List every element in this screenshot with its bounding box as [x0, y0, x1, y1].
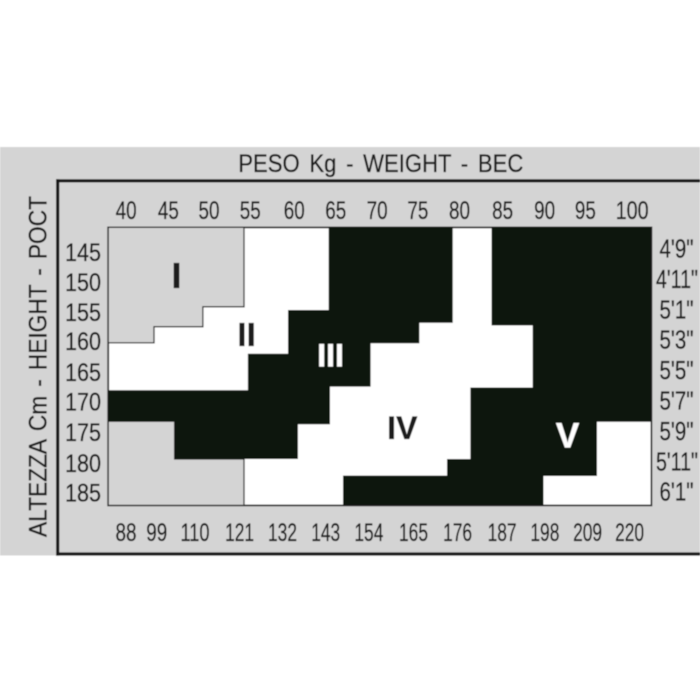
svg-text:5'9": 5'9": [660, 416, 694, 446]
svg-text:IV: IV: [387, 410, 418, 446]
svg-text:PESO Kg - WEIGHT - BEC: PESO Kg - WEIGHT - BEC: [238, 150, 523, 178]
svg-text:4'9": 4'9": [660, 234, 694, 264]
svg-text:150: 150: [65, 269, 101, 297]
svg-text:198: 198: [530, 519, 559, 547]
svg-text:154: 154: [354, 519, 383, 547]
svg-text:6'1": 6'1": [660, 477, 694, 507]
svg-text:220: 220: [615, 519, 644, 547]
svg-text:5'3": 5'3": [660, 325, 694, 355]
svg-text:75: 75: [407, 197, 428, 225]
svg-text:155: 155: [65, 299, 101, 327]
svg-text:209: 209: [573, 519, 602, 547]
svg-text:175: 175: [65, 419, 101, 447]
svg-text:5'1": 5'1": [660, 294, 694, 324]
svg-text:5'11": 5'11": [656, 446, 698, 476]
svg-text:170: 170: [65, 389, 101, 417]
svg-text:5'7": 5'7": [660, 386, 694, 416]
svg-text:45: 45: [158, 197, 179, 225]
svg-text:III: III: [317, 337, 344, 373]
svg-text:99: 99: [146, 519, 167, 547]
svg-text:160: 160: [65, 328, 101, 356]
svg-text:5'5": 5'5": [660, 355, 694, 385]
svg-text:121: 121: [225, 519, 254, 547]
svg-text:100: 100: [616, 197, 649, 225]
svg-text:ALTEZZA Cm - HEIGHT - POCT: ALTEZZA Cm - HEIGHT - POCT: [25, 196, 53, 537]
svg-text:110: 110: [181, 519, 210, 547]
svg-text:145: 145: [65, 239, 101, 267]
svg-text:176: 176: [443, 519, 472, 547]
svg-text:185: 185: [65, 480, 101, 508]
svg-text:II: II: [237, 316, 255, 353]
svg-text:60: 60: [284, 197, 305, 225]
svg-text:4'11": 4'11": [656, 264, 698, 294]
svg-text:95: 95: [575, 197, 596, 225]
svg-text:50: 50: [199, 197, 220, 225]
svg-text:88: 88: [116, 519, 137, 547]
svg-text:180: 180: [65, 450, 101, 478]
svg-text:187: 187: [488, 519, 517, 547]
svg-text:143: 143: [311, 519, 340, 547]
svg-text:90: 90: [534, 197, 555, 225]
svg-text:132: 132: [268, 519, 297, 547]
svg-text:I: I: [171, 255, 181, 296]
svg-text:55: 55: [240, 197, 261, 225]
svg-text:65: 65: [325, 197, 346, 225]
svg-text:80: 80: [449, 197, 470, 225]
svg-text:70: 70: [367, 197, 388, 225]
svg-text:40: 40: [116, 197, 137, 225]
svg-text:85: 85: [492, 197, 513, 225]
svg-text:V: V: [556, 417, 580, 456]
svg-text:165: 165: [399, 519, 428, 547]
svg-text:165: 165: [65, 359, 101, 387]
